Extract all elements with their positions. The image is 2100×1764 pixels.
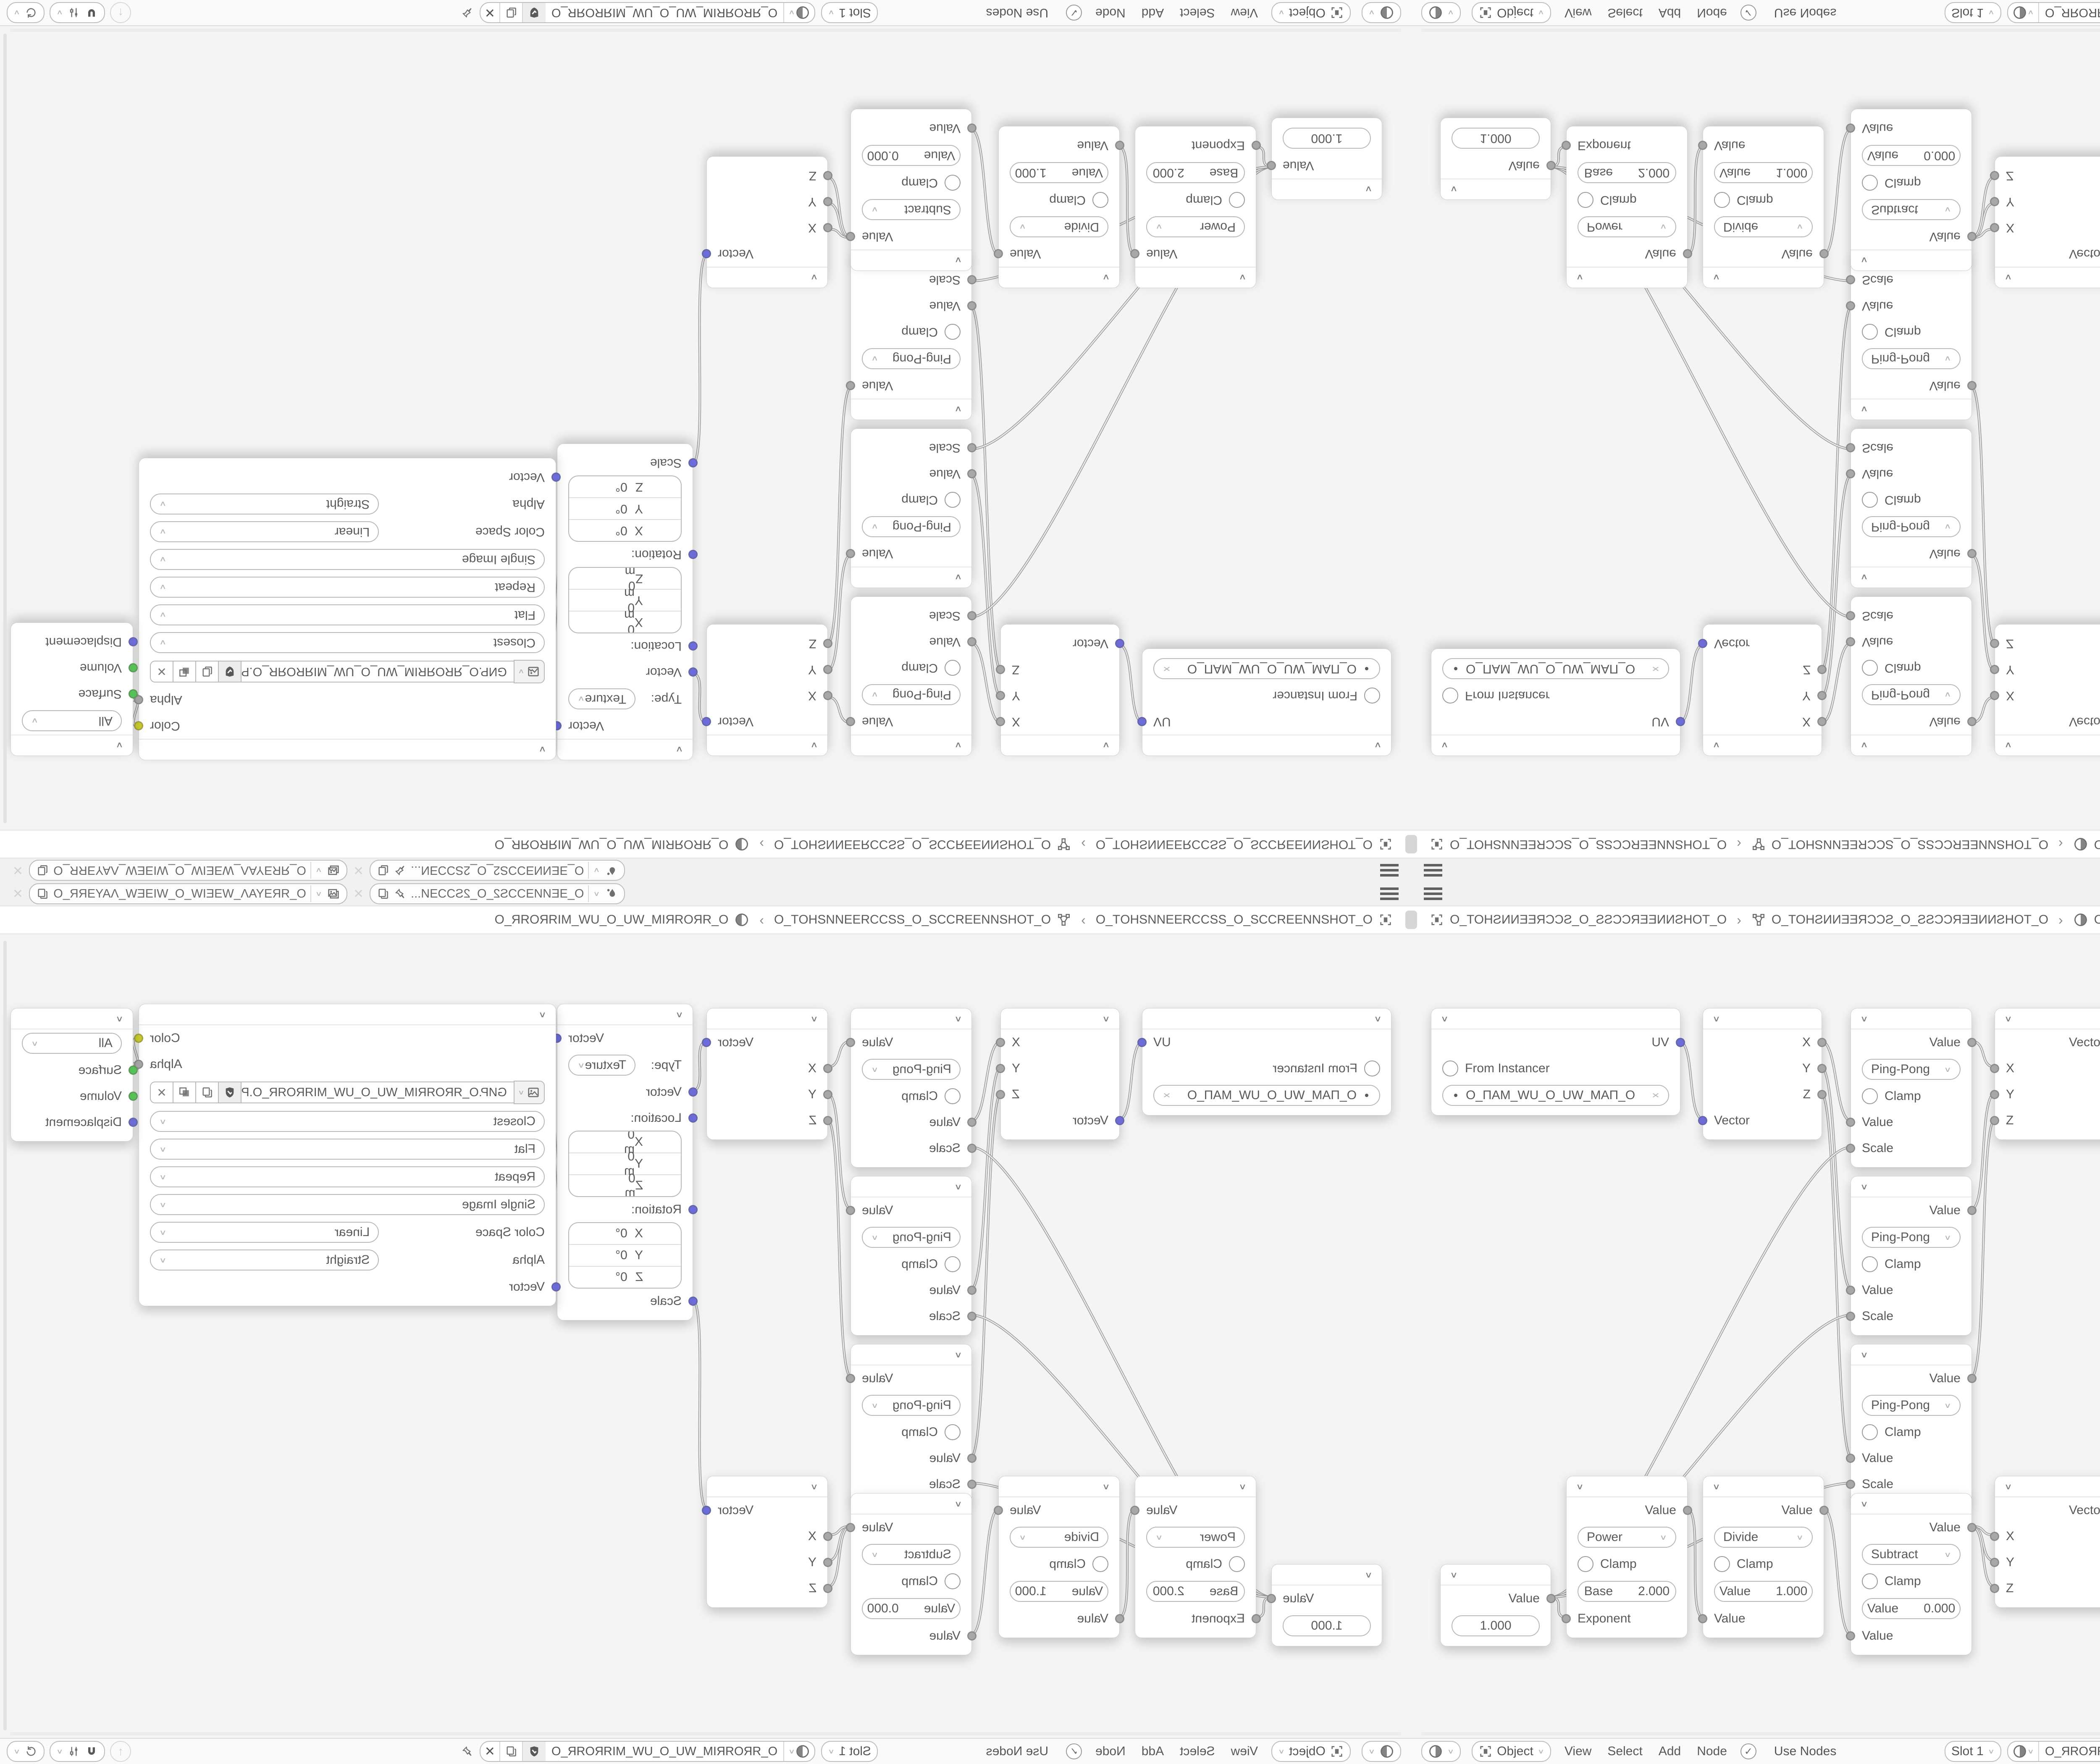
pin-icon[interactable] xyxy=(461,6,474,19)
copy-icon[interactable] xyxy=(376,887,390,900)
node-combine-xyz-bottom[interactable]: ∨Vector X Y Z xyxy=(706,156,828,288)
node-combine-xyz-top[interactable]: ∨Vector X Y Z xyxy=(1995,624,2100,756)
math-pingpong-2-dropdown[interactable]: Ping-Pong∨ xyxy=(851,513,971,541)
slot-dropdown[interactable]: Slot 1 ∨ xyxy=(821,2,878,23)
node-combine-xyz-bottom[interactable]: ∨Vector X Y Z xyxy=(1995,1476,2100,1608)
out-socket[interactable] xyxy=(1817,1090,1827,1099)
material-selector[interactable]: ∨ O_ЯROЯRIM_WU_O_UW_MIЯROЯR_O ✕ xyxy=(480,2,815,23)
in-socket[interactable] xyxy=(1846,1286,1855,1295)
collapse-icon[interactable]: ∨ xyxy=(1860,1349,1868,1359)
uv-map-uv-dropdown[interactable]: O_ПAM_WU_O_UW_MAП_O✕ xyxy=(1142,1081,1391,1109)
node-mapping[interactable]: ∨Vector Type: Texture∨Vector Location: X… xyxy=(557,1004,693,1320)
out-socket[interactable] xyxy=(1676,717,1685,726)
slot-dropdown[interactable]: Slot 1 ∨ xyxy=(821,1741,878,1762)
node-material-output[interactable]: ∨All∨Surface Volume Displacement xyxy=(10,622,133,756)
math-divide-dropdown[interactable]: Divide∨ xyxy=(999,213,1119,241)
collapse-icon[interactable]: ∨ xyxy=(1712,1481,1720,1491)
node-math-pingpong-2[interactable]: ∨Value Ping-Pong∨ClampValue Scale xyxy=(1851,1176,1972,1336)
math-pingpong-1-dropdown[interactable]: Ping-Pong∨ xyxy=(1851,1055,1971,1083)
math-subtract-value-field[interactable]: Value0.000 xyxy=(1851,1594,1971,1623)
node-math-power[interactable]: ∨Value Power∨ClampBase2.000Exponent xyxy=(1135,126,1256,288)
in-socket[interactable] xyxy=(1846,1312,1855,1321)
math-divide-clamp-checkbox[interactable]: Clamp xyxy=(1703,187,1824,213)
breadcrumb-item-screen[interactable]: O_TOHƧИИƎƎЯƆƆƧ_O_ƧƧƆƆЯƎƎИИƧHOT_O xyxy=(1096,837,1373,851)
main-menu-icon[interactable] xyxy=(1424,887,1442,900)
out-socket[interactable] xyxy=(846,717,855,726)
out-socket[interactable] xyxy=(846,381,855,390)
collapse-icon[interactable]: ∨ xyxy=(810,1013,818,1023)
vertical-scrollbar[interactable] xyxy=(3,941,7,1730)
mapping-xyz-fields[interactable]: X0 mY0 mZ0 m xyxy=(557,567,693,633)
in-socket[interactable] xyxy=(967,469,976,478)
in-socket[interactable] xyxy=(129,1092,138,1101)
node-image-texture[interactable]: ∨Color Alpha ∨ GИP.O_ЯROЯRIM_WU_O_UW_MIЯ… xyxy=(139,1004,556,1306)
collapse-icon[interactable]: ∨ xyxy=(1450,1570,1458,1579)
in-socket[interactable] xyxy=(1990,1116,1999,1125)
in-socket[interactable] xyxy=(688,1205,698,1214)
node-separate-xyz[interactable]: ∨X Y Z Vector xyxy=(1703,624,1822,756)
image-texture-dropdown[interactable]: Flat∨ xyxy=(139,1135,556,1163)
menu-view[interactable]: View xyxy=(1562,5,1594,20)
out-socket[interactable] xyxy=(996,1064,1005,1073)
node-image-texture[interactable]: ∨Color Alpha ∨ GИP.O_ЯROЯRIM_WU_O_UW_MIЯ… xyxy=(139,458,556,760)
menu-add[interactable]: Add xyxy=(1139,5,1166,20)
menu-add[interactable]: Add xyxy=(1656,5,1683,20)
material-selector[interactable]: ∨ O_ЯROЯRIM_WU_O_UW_MIЯROЯR_O ✕ xyxy=(2007,1741,2100,1762)
node-math-divide[interactable]: ∨Value Divide∨ClampValue1.000Value xyxy=(1703,126,1824,288)
in-socket[interactable] xyxy=(129,689,138,698)
out-socket[interactable] xyxy=(1676,1038,1685,1047)
in-socket[interactable] xyxy=(1115,1614,1124,1623)
image-texture-image-selector[interactable]: ∨ GИP.O_ЯROЯRIM_WU_O_UW_MIЯROЯR_O.PNG ✕ xyxy=(139,656,556,687)
collapse-icon[interactable]: ∨ xyxy=(954,572,962,582)
math-pingpong-3-clamp-checkbox[interactable]: Clamp xyxy=(1851,1419,1971,1445)
out-socket[interactable] xyxy=(1683,1506,1692,1515)
main-menu-icon[interactable] xyxy=(1424,864,1442,877)
math-divide-dropdown[interactable]: Divide∨ xyxy=(1703,1523,1824,1551)
pages-icon[interactable] xyxy=(173,661,195,682)
in-socket[interactable] xyxy=(823,1116,832,1125)
viewlayer-selector[interactable]: ∨ O_ЯRƎYAΛ_WƎEIW_O_WIƎEW_ΛAYƎRR_O xyxy=(29,860,347,881)
node-combine-xyz-bottom[interactable]: ∨Vector X Y Z xyxy=(706,1476,828,1608)
horizontal-scrollbar[interactable] xyxy=(10,29,1401,32)
in-socket[interactable] xyxy=(1115,1116,1124,1125)
in-socket[interactable] xyxy=(1846,275,1855,284)
math-power-clamp-checkbox[interactable]: Clamp xyxy=(1135,187,1256,213)
up-arrow-button[interactable]: ↑ xyxy=(110,1741,131,1762)
out-socket[interactable] xyxy=(996,691,1005,700)
out-socket[interactable] xyxy=(1683,249,1692,258)
out-socket[interactable] xyxy=(1137,1038,1147,1047)
math-power-value-field[interactable]: Base2.000 xyxy=(1135,1577,1256,1606)
collapse-icon[interactable]: ∨ xyxy=(1102,1013,1110,1023)
math-divide-value-field[interactable]: Value1.000 xyxy=(1703,1577,1824,1606)
node-canvas[interactable]: ∨UV From Instancer O_ПAM_WU_O_UW_MAП_O✕∨… xyxy=(0,0,1411,882)
horizontal-scrollbar[interactable] xyxy=(1421,29,2100,32)
fake-user-shield-icon[interactable] xyxy=(218,1081,241,1103)
image-texture-colorspace-dropdown[interactable]: Color Space Linear∨ xyxy=(139,1218,556,1246)
menu-select[interactable]: Select xyxy=(1177,1744,1217,1759)
in-socket[interactable] xyxy=(688,1297,698,1306)
unlink-icon[interactable]: ✕ xyxy=(150,661,173,682)
menu-select[interactable]: Select xyxy=(1177,5,1217,20)
collapse-icon[interactable]: ∨ xyxy=(954,255,962,265)
node-math-divide[interactable]: ∨Value Divide∨ClampValue1.000Value xyxy=(998,126,1120,288)
math-divide-dropdown[interactable]: Divide∨ xyxy=(999,1523,1119,1551)
collapse-icon[interactable]: ∨ xyxy=(1450,184,1458,194)
out-socket[interactable] xyxy=(1967,232,1977,241)
math-pingpong-2-clamp-checkbox[interactable]: Clamp xyxy=(1851,487,1971,513)
collapse-icon[interactable]: ∨ xyxy=(675,745,683,754)
in-socket[interactable] xyxy=(1698,141,1707,150)
node-value[interactable]: ∨Value 1.000 xyxy=(1440,1564,1551,1646)
breadcrumb-item-screen[interactable]: O_TOHƧИИƎƎЯƆƆƧ_O_ƧƧƆƆЯƎƎИИƧHOT_O xyxy=(1450,913,1727,927)
in-socket[interactable] xyxy=(967,611,976,620)
image-texture-dropdown[interactable]: Single Image∨ xyxy=(139,546,556,573)
collapse-icon[interactable]: ∨ xyxy=(1860,1013,1868,1023)
out-socket[interactable] xyxy=(1817,717,1827,726)
in-socket[interactable] xyxy=(823,1090,832,1099)
uv-map-frominstancer-checkbox[interactable]: From Instancer xyxy=(1142,1055,1391,1081)
in-socket[interactable] xyxy=(551,1282,561,1291)
in-socket[interactable] xyxy=(688,667,698,677)
in-socket[interactable] xyxy=(823,665,832,674)
material-output-dropdown[interactable]: All∨ xyxy=(11,1029,133,1057)
breadcrumb-item-material[interactable]: O_ЯROЯRIM_WU_O_UW_MIЯROЯR_O xyxy=(2094,913,2100,927)
copy-icon[interactable] xyxy=(36,887,49,900)
collapse-icon[interactable]: ∨ xyxy=(954,1181,962,1191)
use-nodes-checkbox[interactable]: ✓ xyxy=(1740,5,1756,21)
material-selector[interactable]: ∨ O_ЯROЯRIM_WU_O_UW_MIЯROЯR_O ✕ xyxy=(480,1741,815,1762)
uv-map-frominstancer-checkbox[interactable]: From Instancer xyxy=(1142,682,1391,709)
out-socket[interactable] xyxy=(702,1506,711,1515)
in-socket[interactable] xyxy=(967,1144,976,1153)
in-socket[interactable] xyxy=(823,1558,832,1567)
math-pingpong-2-clamp-checkbox[interactable]: Clamp xyxy=(851,487,971,513)
node-math-pingpong-3[interactable]: ∨Value Ping-Pong∨ClampValue Scale xyxy=(1851,260,1972,420)
fake-user-shield-icon[interactable] xyxy=(523,3,546,22)
vertical-scrollbar[interactable] xyxy=(3,34,7,823)
in-socket[interactable] xyxy=(688,458,698,467)
menu-view[interactable]: View xyxy=(1562,1744,1594,1759)
collapse-icon[interactable]: ∨ xyxy=(1239,1481,1247,1491)
math-pingpong-1-clamp-checkbox[interactable]: Clamp xyxy=(851,1083,971,1109)
in-socket[interactable] xyxy=(129,663,138,672)
node-math-subtract[interactable]: ∨Value Subtract∨ClampValue0.000Value xyxy=(850,109,972,271)
in-socket[interactable] xyxy=(967,1631,976,1641)
math-power-value-field[interactable]: Base2.000 xyxy=(1567,158,1687,187)
in-socket[interactable] xyxy=(1846,1454,1855,1463)
math-subtract-dropdown[interactable]: Subtract∨ xyxy=(1851,196,1971,223)
node-math-pingpong-1[interactable]: ∨Value Ping-Pong∨ClampValue Scale xyxy=(1851,1008,1972,1168)
math-pingpong-1-dropdown[interactable]: Ping-Pong∨ xyxy=(1851,681,1971,709)
out-socket[interactable] xyxy=(1130,1506,1139,1515)
out-socket[interactable] xyxy=(1130,249,1139,258)
slot-dropdown[interactable]: Slot 1 ∨ xyxy=(1945,2,2001,23)
out-socket[interactable] xyxy=(1819,1506,1829,1515)
collapse-icon[interactable]: ∨ xyxy=(954,740,962,750)
math-pingpong-3-clamp-checkbox[interactable]: Clamp xyxy=(851,319,971,345)
node-math-power[interactable]: ∨Value Power∨ClampBase2.000Exponent xyxy=(1135,1476,1256,1638)
in-socket[interactable] xyxy=(823,691,832,700)
image-texture-alpha-dropdown[interactable]: Alpha Straight∨ xyxy=(139,1246,556,1274)
math-subtract-dropdown[interactable]: Subtract∨ xyxy=(1851,1541,1971,1568)
math-pingpong-2-clamp-checkbox[interactable]: Clamp xyxy=(1851,1251,1971,1277)
editor-type-button[interactable]: ∨ xyxy=(1362,1741,1401,1762)
node-uv-map[interactable]: ∨UV From Instancer O_ПAM_WU_O_UW_MAП_O✕ xyxy=(1431,1008,1680,1116)
unlink-material-icon[interactable]: ✕ xyxy=(480,1742,500,1761)
out-socket[interactable] xyxy=(994,1506,1003,1515)
node-math-pingpong-3[interactable]: ∨Value Ping-Pong∨ClampValue Scale xyxy=(1851,1344,1972,1504)
in-socket[interactable] xyxy=(967,301,976,310)
out-socket[interactable] xyxy=(1817,1064,1827,1073)
math-subtract-dropdown[interactable]: Subtract∨ xyxy=(851,196,971,223)
math-subtract-clamp-checkbox[interactable]: Clamp xyxy=(1851,1568,1971,1594)
menu-node[interactable]: Node xyxy=(1694,1744,1730,1759)
collapse-icon[interactable]: ∨ xyxy=(2004,273,2012,282)
horizontal-scrollbar[interactable] xyxy=(10,1732,1401,1735)
node-material-output[interactable]: ∨All∨Surface Volume Displacement xyxy=(10,1008,133,1142)
in-socket[interactable] xyxy=(967,1454,976,1463)
in-socket[interactable] xyxy=(967,275,976,284)
out-socket[interactable] xyxy=(846,1206,855,1215)
fake-user-shield-icon[interactable] xyxy=(523,1742,546,1761)
collapse-icon[interactable]: ∨ xyxy=(1576,273,1584,282)
breadcrumb-item-screen[interactable]: O_TOHƧИИƎƎЯƆƆƧ_O_ƧƧƆƆЯƎƎИИƧHOT_O xyxy=(1096,913,1373,927)
node-math-subtract[interactable]: ∨Value Subtract∨ClampValue0.000Value xyxy=(850,1493,972,1655)
math-pingpong-2-dropdown[interactable]: Ping-Pong∨ xyxy=(851,1223,971,1251)
in-socket[interactable] xyxy=(967,1286,976,1295)
shader-mode-dropdown[interactable]: Object ∨ xyxy=(1472,1741,1551,1762)
in-socket[interactable] xyxy=(1990,1584,1999,1593)
out-socket[interactable] xyxy=(846,1523,855,1532)
value-value-field[interactable]: 1.000 xyxy=(1441,124,1551,152)
out-socket[interactable] xyxy=(994,249,1003,258)
copy-icon[interactable] xyxy=(376,864,390,877)
uv-map-uv-dropdown[interactable]: O_ПAM_WU_O_UW_MAП_O✕ xyxy=(1142,655,1391,682)
in-socket[interactable] xyxy=(688,1113,698,1123)
node-combine-xyz-top[interactable]: ∨Vector X Y Z xyxy=(706,1008,828,1140)
collapse-icon[interactable]: ∨ xyxy=(954,1013,962,1023)
collapse-icon[interactable]: ∨ xyxy=(1365,1570,1373,1579)
collapse-icon[interactable]: ∨ xyxy=(954,1349,962,1359)
image-texture-alpha-dropdown[interactable]: Alpha Straight∨ xyxy=(139,490,556,518)
uv-map-uv-dropdown[interactable]: O_ПAM_WU_O_UW_MAП_O✕ xyxy=(1431,1081,1680,1109)
in-socket[interactable] xyxy=(688,1087,698,1097)
math-pingpong-2-dropdown[interactable]: Ping-Pong∨ xyxy=(1851,513,1971,541)
copy-material-icon[interactable] xyxy=(500,3,523,22)
math-pingpong-1-clamp-checkbox[interactable]: Clamp xyxy=(1851,1083,1971,1109)
math-pingpong-3-dropdown[interactable]: Ping-Pong∨ xyxy=(1851,1391,1971,1419)
math-pingpong-1-clamp-checkbox[interactable]: Clamp xyxy=(1851,655,1971,681)
collapse-icon[interactable]: ∨ xyxy=(1239,273,1247,282)
out-socket[interactable] xyxy=(1137,717,1147,726)
out-socket[interactable] xyxy=(702,717,711,726)
image-texture-dropdown[interactable]: Flat∨ xyxy=(139,601,556,629)
collapse-icon[interactable]: ∨ xyxy=(1712,273,1720,282)
out-socket[interactable] xyxy=(1967,549,1977,558)
math-pingpong-2-dropdown[interactable]: Ping-Pong∨ xyxy=(1851,1223,1971,1251)
slot-dropdown[interactable]: Slot 1 ∨ xyxy=(1945,1741,2001,1762)
collapse-icon[interactable]: ∨ xyxy=(954,1499,962,1508)
math-pingpong-2-clamp-checkbox[interactable]: Clamp xyxy=(851,1251,971,1277)
in-socket[interactable] xyxy=(1990,1064,1999,1073)
node-separate-xyz[interactable]: ∨X Y Z Vector xyxy=(1000,1008,1120,1140)
menu-add[interactable]: Add xyxy=(1656,1744,1683,1759)
unlink-material-icon[interactable]: ✕ xyxy=(480,3,500,22)
in-socket[interactable] xyxy=(1562,1614,1571,1623)
node-value[interactable]: ∨Value 1.000 xyxy=(1271,1564,1382,1646)
node-mapping[interactable]: ∨Vector Type: Texture∨Vector Location: X… xyxy=(557,444,693,760)
breadcrumb-item-nodetree[interactable]: O_TOHƧИИƎƎЯƆƆƧ_O_ƧƧƆƆЯƎƎИИƧHOT_O xyxy=(774,913,1051,927)
in-socket[interactable] xyxy=(967,443,976,452)
collapse-icon[interactable]: ∨ xyxy=(810,1481,818,1491)
math-subtract-clamp-checkbox[interactable]: Clamp xyxy=(1851,170,1971,196)
out-socket[interactable] xyxy=(1967,1523,1977,1532)
in-socket[interactable] xyxy=(823,639,832,648)
in-socket[interactable] xyxy=(1846,1144,1855,1153)
collapse-icon[interactable]: ∨ xyxy=(1860,740,1868,750)
in-socket[interactable] xyxy=(1990,171,1999,180)
out-socket[interactable] xyxy=(134,1034,143,1043)
in-socket[interactable] xyxy=(967,1480,976,1489)
menu-select[interactable]: Select xyxy=(1605,5,1645,20)
out-socket[interactable] xyxy=(1267,161,1276,170)
in-socket[interactable] xyxy=(129,1066,138,1075)
math-power-value-field[interactable]: Base2.000 xyxy=(1135,158,1256,187)
out-socket[interactable] xyxy=(1817,1038,1827,1047)
out-socket[interactable] xyxy=(1817,691,1827,700)
math-pingpong-3-clamp-checkbox[interactable]: Clamp xyxy=(1851,319,1971,345)
node-math-divide[interactable]: ∨Value Divide∨ClampValue1.000Value xyxy=(1703,1476,1824,1638)
uv-map-frominstancer-checkbox[interactable]: From Instancer xyxy=(1431,1055,1680,1081)
value-value-field[interactable]: 1.000 xyxy=(1272,1612,1382,1640)
image-texture-dropdown[interactable]: Single Image∨ xyxy=(139,1191,556,1218)
mapping-xyz-fields[interactable]: X0°Y0°Z0° xyxy=(557,1223,693,1288)
in-socket[interactable] xyxy=(1846,1631,1855,1641)
in-socket[interactable] xyxy=(1990,639,1999,648)
in-socket[interactable] xyxy=(1252,141,1261,150)
node-math-pingpong-1[interactable]: ∨Value Ping-Pong∨ClampValue Scale xyxy=(1851,596,1972,756)
node-math-pingpong-3[interactable]: ∨Value Ping-Pong∨ClampValue Scale xyxy=(850,260,972,420)
collapse-icon[interactable]: ∨ xyxy=(2004,740,2012,750)
out-socket[interactable] xyxy=(846,1038,855,1047)
node-math-subtract[interactable]: ∨Value Subtract∨ClampValue0.000Value xyxy=(1851,1493,1972,1655)
area-corner-handle[interactable] xyxy=(1411,911,1417,929)
copy-icon[interactable] xyxy=(195,661,218,682)
in-socket[interactable] xyxy=(1846,469,1855,478)
math-subtract-value-field[interactable]: Value0.000 xyxy=(851,1594,971,1623)
material-selector[interactable]: ∨ O_ЯROЯRIM_WU_O_UW_MIЯROЯR_O ✕ xyxy=(2007,2,2100,23)
horizontal-scrollbar[interactable] xyxy=(1421,1732,2100,1735)
node-combine-xyz-bottom[interactable]: ∨Vector X Y Z xyxy=(1995,156,2100,288)
in-socket[interactable] xyxy=(129,637,138,646)
math-power-clamp-checkbox[interactable]: Clamp xyxy=(1135,1551,1256,1577)
image-texture-dropdown[interactable]: Repeat∨ xyxy=(139,573,556,601)
shader-mode-dropdown[interactable]: Object ∨ xyxy=(1271,2,1351,23)
in-socket[interactable] xyxy=(823,223,832,232)
out-socket[interactable] xyxy=(846,232,855,241)
in-socket[interactable] xyxy=(1562,141,1571,150)
in-socket[interactable] xyxy=(1990,1558,1999,1567)
copy-material-icon[interactable] xyxy=(500,1742,523,1761)
main-menu-icon[interactable] xyxy=(1380,864,1399,877)
collapse-icon[interactable]: ∨ xyxy=(2004,1013,2012,1023)
collapse-icon[interactable]: ∨ xyxy=(538,1009,546,1019)
shader-mode-dropdown[interactable]: Object ∨ xyxy=(1472,2,1551,23)
math-divide-value-field[interactable]: Value1.000 xyxy=(1703,158,1824,187)
editor-type-button[interactable]: ∨ xyxy=(1421,1741,1461,1762)
math-pingpong-3-dropdown[interactable]: Ping-Pong∨ xyxy=(851,345,971,373)
node-uv-map[interactable]: ∨UV From Instancer O_ПAM_WU_O_UW_MAП_O✕ xyxy=(1142,1008,1391,1116)
in-socket[interactable] xyxy=(1990,691,1999,700)
node-canvas[interactable]: ∨UV From Instancer O_ПAM_WU_O_UW_MAП_O✕∨… xyxy=(1411,0,2100,882)
collapse-icon[interactable]: ∨ xyxy=(1860,1181,1868,1191)
collapse-icon[interactable]: ∨ xyxy=(1860,572,1868,582)
node-math-pingpong-2[interactable]: ∨Value Ping-Pong∨ClampValue Scale xyxy=(1851,428,1972,588)
menu-node[interactable]: Node xyxy=(1093,1744,1128,1759)
in-socket[interactable] xyxy=(1115,639,1124,648)
out-socket[interactable] xyxy=(1546,161,1556,170)
value-value-field[interactable]: 1.000 xyxy=(1272,124,1382,152)
in-socket[interactable] xyxy=(1115,141,1124,150)
collapse-icon[interactable]: ∨ xyxy=(1365,184,1373,194)
in-socket[interactable] xyxy=(129,1118,138,1127)
collapse-icon[interactable]: ∨ xyxy=(1441,1013,1449,1023)
breadcrumb-item-nodetree[interactable]: O_TOHƧИИƎƎЯƆƆƧ_O_ƧƧƆƆЯƎƎИИƧHOT_O xyxy=(1772,913,2048,927)
math-divide-clamp-checkbox[interactable]: Clamp xyxy=(1703,1551,1824,1577)
image-texture-dropdown[interactable]: Repeat∨ xyxy=(139,1163,556,1191)
collapse-icon[interactable]: ∨ xyxy=(1860,1499,1868,1508)
material-output-dropdown[interactable]: All∨ xyxy=(11,707,133,735)
in-socket[interactable] xyxy=(967,1118,976,1127)
mapping-xyz-fields[interactable]: X0°Y0°Z0° xyxy=(557,476,693,541)
in-socket[interactable] xyxy=(1846,1480,1855,1489)
main-menu-icon[interactable] xyxy=(1380,887,1399,900)
image-texture-colorspace-dropdown[interactable]: Color Space Linear∨ xyxy=(139,518,556,546)
copy-icon[interactable] xyxy=(36,864,49,877)
collapse-icon[interactable]: ∨ xyxy=(115,740,123,750)
image-texture-dropdown[interactable]: Closest∨ xyxy=(139,1108,556,1135)
in-socket[interactable] xyxy=(967,1312,976,1321)
math-pingpong-1-dropdown[interactable]: Ping-Pong∨ xyxy=(851,1055,971,1083)
in-socket[interactable] xyxy=(1990,665,1999,674)
node-math-pingpong-1[interactable]: ∨Value Ping-Pong∨ClampValue Scale xyxy=(850,1008,972,1168)
node-combine-xyz-top[interactable]: ∨Vector X Y Z xyxy=(706,624,828,756)
image-texture-dropdown[interactable]: Closest∨ xyxy=(139,629,556,656)
out-socket[interactable] xyxy=(1967,1038,1977,1047)
out-socket[interactable] xyxy=(702,249,711,258)
node-math-divide[interactable]: ∨Value Divide∨ClampValue1.000Value xyxy=(998,1476,1120,1638)
collapse-icon[interactable]: ∨ xyxy=(2004,1481,2012,1491)
math-divide-value-field[interactable]: Value1.000 xyxy=(999,1577,1119,1606)
math-power-clamp-checkbox[interactable]: Clamp xyxy=(1567,1551,1687,1577)
math-divide-clamp-checkbox[interactable]: Clamp xyxy=(999,1551,1119,1577)
fake-user-shield-icon[interactable] xyxy=(218,661,241,682)
node-separate-xyz[interactable]: ∨X Y Z Vector xyxy=(1000,624,1120,756)
image-texture-image-selector[interactable]: ∨ GИP.O_ЯROЯRIM_WU_O_UW_MIЯROЯR_O.PNG ✕ xyxy=(139,1077,556,1108)
out-socket[interactable] xyxy=(1967,1374,1977,1383)
math-subtract-clamp-checkbox[interactable]: Clamp xyxy=(851,170,971,196)
node-value[interactable]: ∨Value 1.000 xyxy=(1440,118,1551,200)
collapse-icon[interactable]: ∨ xyxy=(810,740,818,750)
collapse-icon[interactable]: ∨ xyxy=(1102,273,1110,282)
node-math-pingpong-2[interactable]: ∨Value Ping-Pong∨ClampValue Scale xyxy=(850,428,972,588)
collapse-icon[interactable]: ∨ xyxy=(675,1009,683,1019)
math-pingpong-3-clamp-checkbox[interactable]: Clamp xyxy=(851,1419,971,1445)
menu-view[interactable]: View xyxy=(1228,5,1260,20)
menu-select[interactable]: Select xyxy=(1605,1744,1645,1759)
